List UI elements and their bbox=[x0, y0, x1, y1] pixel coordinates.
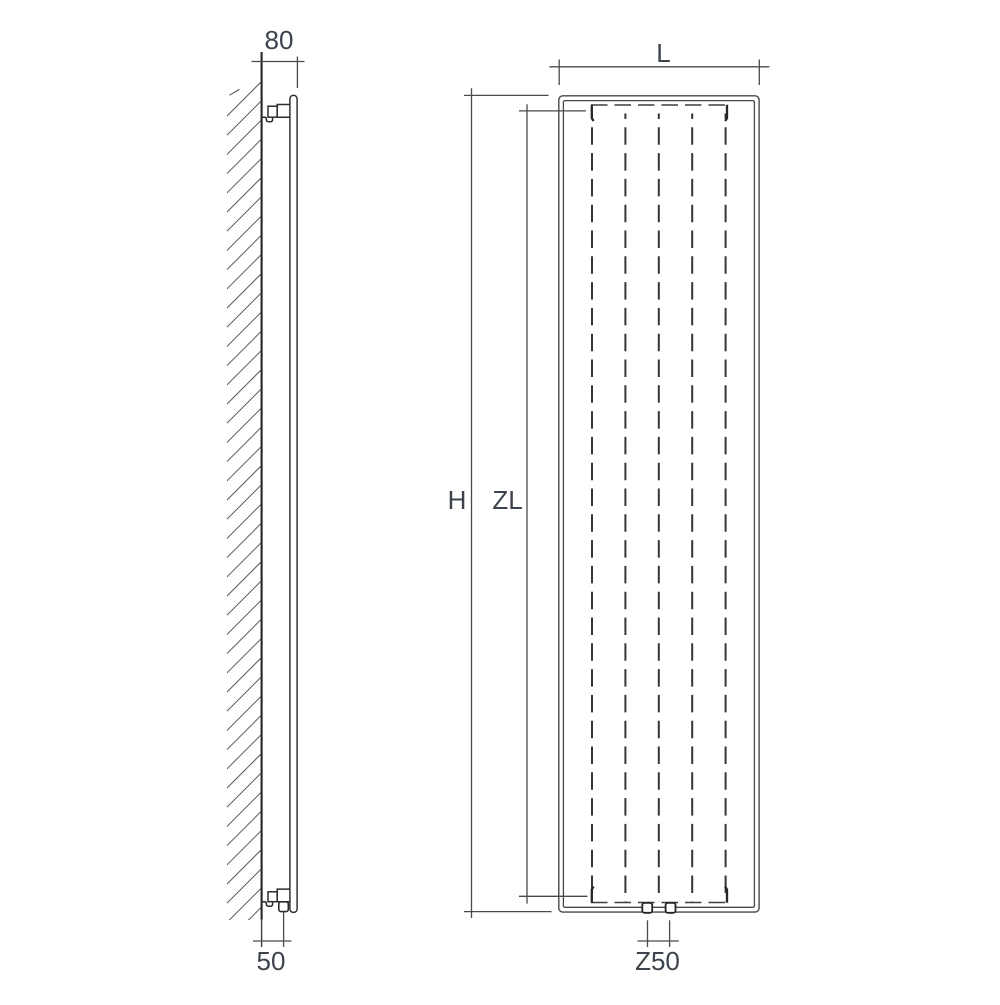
svg-text:Z50: Z50 bbox=[635, 946, 680, 976]
svg-text:H: H bbox=[448, 485, 467, 515]
svg-text:50: 50 bbox=[257, 946, 286, 976]
svg-text:L: L bbox=[656, 38, 670, 68]
svg-text:ZL: ZL bbox=[492, 485, 522, 515]
svg-text:80: 80 bbox=[265, 25, 294, 55]
